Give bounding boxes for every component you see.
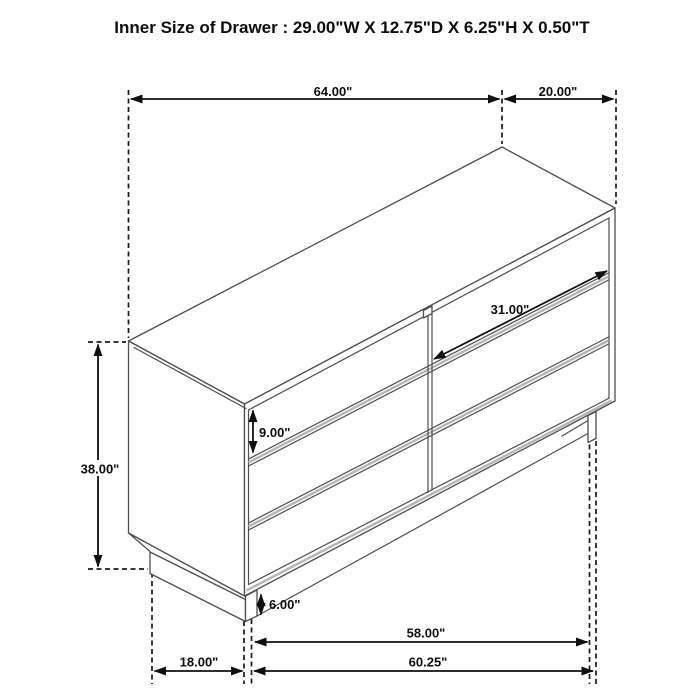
dim-label-overall-height: 38.00"	[81, 462, 120, 477]
left-leg	[246, 590, 258, 622]
dim-label-side-depth: 18.00"	[180, 655, 219, 670]
dresser-drawing	[129, 147, 616, 622]
page-title: Inner Size of Drawer : 29.00"W X 12.75"D…	[114, 18, 590, 37]
diagram-canvas: Inner Size of Drawer : 29.00"W X 12.75"D…	[0, 0, 700, 700]
dim-label-top-width: 64.00"	[314, 84, 353, 99]
dresser-dimension-diagram: Inner Size of Drawer : 29.00"W X 12.75"D…	[0, 0, 700, 700]
dim-label-front-width: 60.25"	[409, 655, 448, 670]
dim-label-drawer-width: 31.00"	[491, 302, 530, 317]
dim-label-top-depth: 20.00"	[539, 84, 578, 99]
dim-label-inner-leg-span: 58.00"	[407, 626, 446, 641]
dim-label-drawer-face-height: 9.00"	[259, 425, 290, 440]
right-leg	[588, 412, 596, 443]
dim-label-base-height: 6.00"	[269, 597, 300, 612]
